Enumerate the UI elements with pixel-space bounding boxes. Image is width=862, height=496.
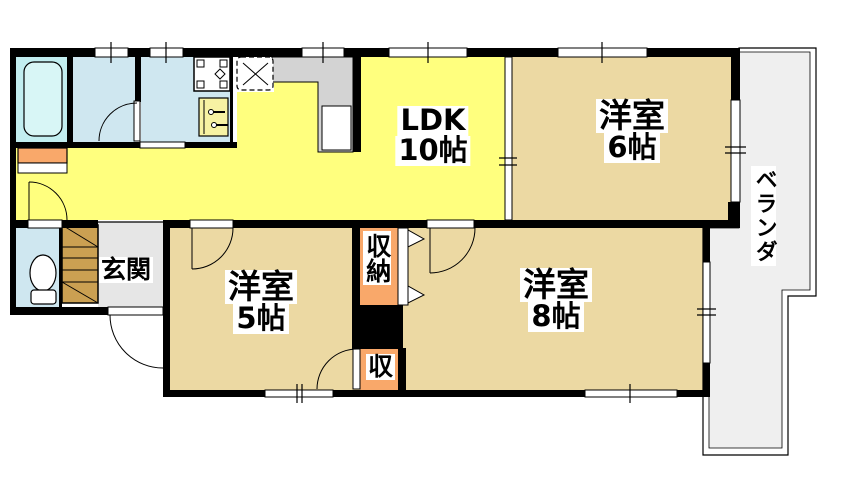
entrance-label: 玄関 [99, 257, 153, 283]
wall-segment [474, 220, 739, 228]
wall-segment [183, 48, 302, 57]
wall-segment [10, 307, 108, 315]
washroom1-floor [73, 57, 135, 142]
closet-folding-door [398, 228, 408, 305]
washing-machine-pan [194, 57, 230, 91]
wall-segment [647, 48, 739, 57]
ldk-label: LDK 10帖 [395, 106, 470, 166]
bedroom5-label: 洋室 5帖 [225, 270, 297, 334]
wall-segment [333, 390, 585, 397]
window-balcony [703, 262, 710, 363]
kitchen-sink [322, 106, 351, 150]
wall-segment [135, 57, 141, 102]
wall-segment [352, 228, 360, 305]
entrance-door-leaf [108, 307, 163, 315]
wall-segment [703, 363, 710, 397]
window [265, 390, 333, 397]
wall-segment [344, 48, 389, 57]
bedroom6-label-line2: 6帖 [604, 133, 659, 163]
window-balcony [731, 100, 740, 202]
wall-segment [703, 228, 710, 262]
bedroom8-label-line2: 8帖 [528, 302, 583, 332]
wall-segment [185, 142, 237, 148]
floor-plan-drawing [0, 0, 862, 496]
bedroom8-label-line1: 洋室 [520, 268, 592, 302]
ldk-label-line1: LDK [397, 106, 468, 136]
wall-segment [398, 348, 406, 390]
door-opening [427, 220, 474, 228]
bedroom5-label-line2: 5帖 [233, 304, 288, 334]
wall-segment [10, 220, 28, 228]
wall-segment [163, 220, 170, 397]
wall-segment [467, 48, 558, 57]
closet-small-label: 収 [366, 354, 395, 380]
wall-segment [59, 228, 62, 307]
pipe-shaft [352, 305, 403, 350]
wall-segment [128, 48, 150, 57]
washbasin [199, 98, 228, 136]
bedroom8-label: 洋室 8帖 [520, 268, 592, 332]
door-opening [140, 142, 185, 148]
bedroom6-label-line1: 洋室 [596, 99, 668, 133]
refrigerator-space [237, 57, 273, 90]
sliding-partition [505, 57, 512, 220]
wall-segment [10, 142, 140, 148]
hall-cabinet [18, 148, 67, 173]
shoe-cabinet [62, 225, 98, 303]
ldk-label-line2: 10帖 [395, 136, 470, 166]
closet-small-door [353, 349, 360, 389]
floor-plan: LDK 10帖 洋室 6帖 洋室 5帖 洋室 8帖 玄関 収納 収 ベランダ [0, 0, 862, 496]
bedroom6-label: 洋室 6帖 [596, 99, 668, 163]
wall-segment [67, 57, 73, 142]
door-opening [28, 220, 62, 228]
wall-segment [233, 220, 428, 228]
wall-segment [10, 48, 16, 315]
wall-segment [230, 57, 233, 142]
toilet [30, 255, 56, 304]
door-opening [190, 220, 233, 228]
wall-segment [353, 57, 361, 152]
wall-segment [731, 48, 740, 100]
bathtub [24, 62, 62, 136]
bedroom5-label-line1: 洋室 [225, 270, 297, 304]
window [585, 390, 677, 397]
wall-segment [62, 220, 98, 228]
door-arc [110, 315, 163, 368]
wall-segment [10, 48, 95, 57]
wall-segment [163, 390, 265, 397]
washroom-door-leaf [134, 101, 140, 141]
closet-label: 収納 [363, 231, 391, 285]
balcony-label: ベランダ [751, 166, 776, 266]
